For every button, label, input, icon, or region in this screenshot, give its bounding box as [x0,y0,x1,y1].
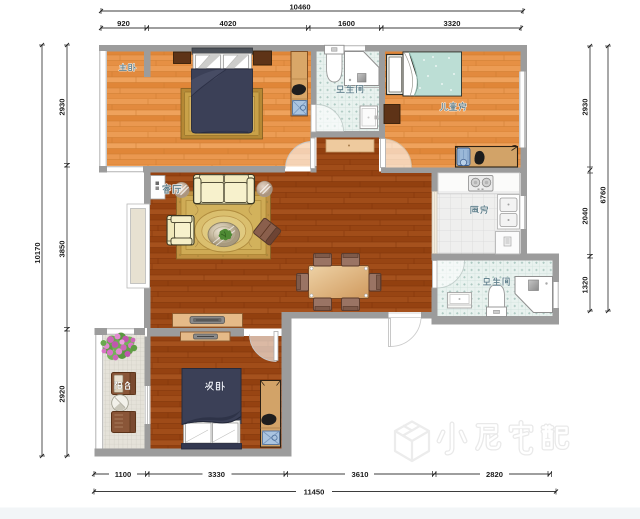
svg-text:3320: 3320 [444,19,461,28]
svg-text:2930: 2930 [581,99,590,116]
svg-text:920: 920 [117,19,130,28]
svg-text:11450: 11450 [304,488,325,497]
svg-text:6760: 6760 [599,187,608,204]
svg-text:1600: 1600 [338,19,355,28]
svg-text:3850: 3850 [58,241,67,258]
svg-text:1100: 1100 [115,470,131,479]
svg-text:10460: 10460 [289,3,310,12]
svg-text:3330: 3330 [208,470,225,479]
svg-text:1320: 1320 [581,277,590,294]
svg-text:3610: 3610 [352,470,369,479]
svg-text:4020: 4020 [220,19,237,28]
svg-text:2920: 2920 [58,386,67,403]
svg-text:2040: 2040 [581,208,590,225]
svg-text:10170: 10170 [33,242,42,263]
svg-text:2930: 2930 [58,99,67,116]
svg-text:2820: 2820 [486,470,503,479]
